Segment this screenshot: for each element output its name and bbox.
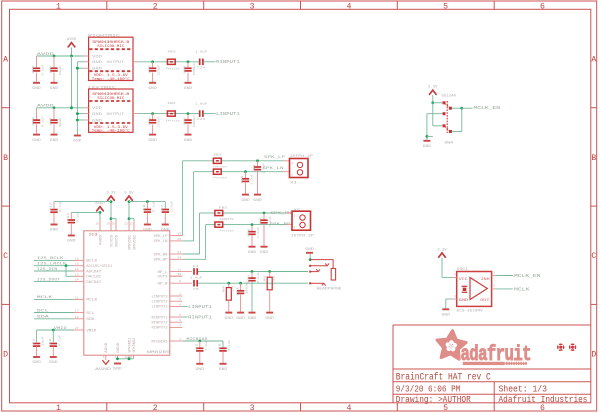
svg-text:D: D	[591, 351, 596, 360]
svg-text:19: 19	[111, 223, 115, 226]
svg-text:SPKVDD1: SPKVDD1	[127, 235, 131, 250]
svg-text:SPK_LP: SPK_LP	[154, 235, 168, 239]
svg-text:GND: GND	[253, 198, 262, 202]
svg-text:DGND: DGND	[116, 343, 120, 353]
svg-text:MCLK: MCLK	[514, 288, 530, 292]
svg-text:AGND: AGND	[104, 343, 108, 353]
svg-text:RINPUT1: RINPUT1	[216, 61, 240, 65]
svg-text:SPK_RN: SPK_RN	[154, 253, 168, 257]
svg-text:5.0V: 5.0V	[124, 191, 134, 195]
svg-text:3: 3	[250, 404, 255, 413]
svg-text:MCLK_EN: MCLK_EN	[474, 107, 501, 111]
svg-text:SPK_LN: SPK_LN	[263, 167, 285, 171]
svg-text:VCC: VCC	[459, 278, 468, 282]
svg-text:R6: R6	[264, 275, 267, 281]
svg-text:C13: C13	[241, 175, 244, 183]
svg-text:C: C	[591, 252, 596, 261]
svg-text:5: 5	[443, 3, 448, 12]
svg-text:OUT: OUT	[480, 299, 490, 303]
svg-text:ferrite: ferrite	[213, 176, 227, 180]
svg-text:FB1: FB1	[214, 153, 222, 157]
svg-text:1: 1	[56, 3, 61, 12]
svg-text:GND: GND	[236, 316, 245, 320]
svg-text:9/3/20 6:06 PM: 9/3/20 6:06 PM	[396, 384, 461, 395]
svg-text:LINPUT1: LINPUT1	[188, 306, 212, 310]
svg-text:GND: GND	[148, 86, 157, 90]
svg-text:1: 1	[291, 162, 293, 165]
svg-text:GND: GND	[219, 367, 228, 371]
svg-text:C5: C5	[193, 287, 199, 291]
svg-text:4: 4	[179, 303, 181, 306]
svg-text:GND: GND	[92, 68, 103, 72]
svg-text:GND: GND	[32, 86, 41, 90]
svg-text:2: 2	[291, 173, 293, 176]
svg-text:ADCDAT: ADCDAT	[86, 270, 101, 274]
svg-text:SWA: SWA	[444, 141, 453, 145]
svg-text:1.0uF: 1.0uF	[195, 50, 207, 54]
svg-text:MICBIAS: MICBIAS	[152, 340, 168, 344]
svg-text:29: 29	[106, 223, 110, 226]
svg-text:GND: GND	[225, 316, 234, 320]
svg-text:ferrite: ferrite	[166, 67, 180, 71]
svg-text:GND: GND	[184, 138, 193, 142]
svg-text:0.1uF: 0.1uF	[59, 201, 62, 212]
svg-text:DBVDD: DBVDD	[114, 235, 118, 247]
svg-text:OUT3: OUT3	[158, 276, 168, 280]
svg-text:C11: C11	[253, 164, 256, 172]
svg-text:24: 24	[232, 286, 235, 292]
svg-text:BrainCraft HAT rev C: BrainCraft HAT rev C	[396, 371, 491, 383]
svg-text:1000pF: 1000pF	[193, 114, 196, 127]
svg-text:C17: C17	[50, 117, 53, 125]
svg-text:AGND: AGND	[95, 367, 111, 371]
svg-text:21: 21	[124, 223, 128, 226]
svg-text:220pF: 220pF	[158, 116, 161, 127]
svg-text:GND: GND	[92, 119, 103, 123]
svg-text:Adafruit Industries: Adafruit Industries	[499, 394, 588, 405]
svg-text:7: 7	[179, 324, 181, 327]
svg-text:SILICON MIC: SILICON MIC	[97, 97, 124, 101]
svg-text:ferrite: ferrite	[213, 165, 227, 169]
svg-text:28: 28	[95, 223, 99, 226]
svg-text:GND: GND	[92, 61, 103, 65]
svg-text:SPKGND1: SPKGND1	[127, 338, 131, 353]
svg-text:SILICON MIC: SILICON MIC	[97, 45, 124, 49]
svg-text:GND: GND	[50, 138, 59, 142]
svg-text:RINPUT1: RINPUT1	[188, 316, 212, 320]
svg-text:1.0uF: 1.0uF	[170, 201, 173, 212]
svg-text:FB4: FB4	[168, 101, 176, 105]
svg-text:C23: C23	[197, 117, 205, 121]
svg-text:0.1uF: 0.1uF	[42, 116, 45, 127]
svg-text:RIGHTMIC: RIGHTMIC	[88, 35, 121, 39]
svg-text:IC3: IC3	[89, 233, 99, 237]
svg-text:AVDD: AVDD	[67, 37, 77, 41]
svg-text:ferrite: ferrite	[166, 118, 180, 122]
svg-text:10uF: 10uF	[59, 117, 62, 127]
svg-text:ECS-2520MV: ECS-2520MV	[457, 308, 483, 312]
svg-text:4: 4	[347, 3, 352, 12]
svg-text:SPK_LP: SPK_LP	[264, 156, 286, 160]
svg-text:GND: GND	[50, 228, 59, 232]
svg-text:Temp: -40-100°C: Temp: -40-100°C	[92, 129, 130, 134]
svg-text:2: 2	[153, 3, 158, 12]
svg-text:9: 9	[179, 280, 181, 283]
svg-text:1: 1	[179, 338, 181, 341]
svg-text:2: 2	[153, 404, 158, 413]
svg-text:1: 1	[56, 404, 61, 413]
svg-text:C6: C6	[143, 204, 146, 210]
svg-text:Drawing: >AUTHOR: Drawing: >AUTHOR	[396, 394, 471, 405]
svg-text:C2: C2	[196, 343, 199, 349]
svg-text:LINPUT3: LINPUT3	[152, 295, 168, 299]
svg-text:26: 26	[177, 238, 181, 241]
svg-text:6: 6	[540, 404, 545, 413]
svg-text:3: 3	[179, 298, 181, 301]
svg-text:3.3V: 3.3V	[428, 85, 438, 89]
svg-text:RINPUT1: RINPUT1	[152, 316, 168, 320]
svg-text:OUTPUT: OUTPUT	[107, 113, 125, 117]
svg-text:FB3: FB3	[168, 49, 176, 53]
svg-text:1.0uF: 1.0uF	[257, 227, 260, 238]
svg-text:3.3V: 3.3V	[106, 191, 116, 195]
svg-text:HEADPHONE: HEADPHONE	[317, 286, 342, 290]
svg-text:GND: GND	[459, 299, 469, 303]
svg-text:SPK_LN: SPK_LN	[154, 240, 168, 244]
svg-text:G51240: G51240	[442, 93, 457, 97]
svg-text:23: 23	[177, 251, 181, 254]
svg-text:1.0uF: 1.0uF	[195, 101, 207, 105]
svg-text:LEFTMIC: LEFTMIC	[88, 86, 117, 90]
svg-text:HP_R: HP_R	[158, 283, 168, 287]
svg-text:C10: C10	[50, 65, 53, 73]
svg-text:11: 11	[75, 296, 79, 299]
svg-text:VDD: VDD	[92, 55, 103, 59]
svg-text:18: 18	[75, 316, 79, 319]
svg-text:3.3V: 3.3V	[437, 248, 447, 252]
svg-text:17: 17	[75, 310, 79, 313]
svg-text:C1: C1	[32, 338, 35, 344]
svg-text:DACDAT: DACDAT	[86, 281, 101, 285]
svg-text:C7: C7	[161, 204, 164, 210]
svg-text:C4: C4	[193, 264, 199, 268]
svg-text:24: 24	[177, 256, 181, 259]
svg-text:RINPUT2: RINPUT2	[152, 322, 168, 326]
svg-text:GND: GND	[50, 86, 59, 90]
svg-text:SPK_RP: SPK_RP	[154, 259, 168, 263]
svg-text:Ferrite: Ferrite	[220, 229, 234, 233]
svg-text:WM8960: WM8960	[147, 351, 171, 355]
svg-text:SPKVDD2: SPKVDD2	[132, 235, 136, 250]
svg-text:4.7uF: 4.7uF	[58, 335, 61, 346]
svg-text:5: 5	[443, 404, 448, 413]
svg-text:0.1uF: 0.1uF	[153, 201, 156, 212]
svg-text:C19: C19	[32, 117, 35, 125]
svg-text:DACLRC: DACLRC	[86, 276, 101, 280]
svg-text:C20: C20	[248, 275, 251, 283]
svg-text:OUTPUT: OUTPUT	[107, 61, 125, 65]
svg-text:GND: GND	[32, 360, 41, 364]
svg-text:GND: GND	[196, 367, 205, 371]
svg-text:FERRITE: FERRITE	[220, 217, 234, 221]
svg-text:2.2uF: 2.2uF	[257, 272, 260, 283]
svg-text:LINPUT1: LINPUT1	[152, 306, 168, 310]
svg-text:1000pF: 1000pF	[193, 62, 196, 75]
svg-text:0.1uF: 0.1uF	[42, 64, 45, 75]
svg-text:GND: GND	[305, 247, 314, 251]
svg-text:22: 22	[129, 223, 133, 226]
svg-text:6: 6	[540, 3, 545, 12]
svg-text:MCLK: MCLK	[86, 299, 98, 303]
svg-text:GND: GND	[161, 228, 170, 232]
svg-text:36: 36	[273, 275, 276, 281]
svg-text:BCLK: BCLK	[86, 260, 98, 264]
svg-text:GND: GND	[67, 239, 76, 243]
svg-text:D: D	[3, 351, 8, 360]
svg-text:GND: GND	[143, 228, 152, 232]
svg-text:11: 11	[177, 269, 181, 272]
svg-text:GND: GND	[241, 198, 250, 202]
svg-text:R4: R4	[223, 286, 226, 292]
svg-text:5: 5	[179, 314, 181, 317]
svg-text:LINPUT2: LINPUT2	[152, 301, 168, 305]
svg-text:GND: GND	[184, 86, 193, 90]
svg-text:SCL: SCL	[86, 312, 94, 316]
svg-text:C29: C29	[148, 117, 151, 125]
svg-text:GND: GND	[265, 316, 274, 320]
svg-text:VMID: VMID	[86, 329, 96, 333]
svg-text:25: 25	[177, 233, 181, 236]
svg-text:C15: C15	[260, 217, 263, 225]
svg-text:GND: GND	[92, 113, 103, 117]
svg-text:GND: GND	[423, 144, 432, 148]
svg-text:13: 13	[75, 273, 79, 276]
svg-text:2: 2	[294, 226, 296, 229]
svg-text:12: 12	[75, 257, 79, 260]
svg-text:AVDD: AVDD	[98, 235, 102, 245]
svg-text:FB5: FB5	[219, 205, 227, 209]
svg-text:3: 3	[250, 3, 255, 12]
svg-text:0.1uF: 0.1uF	[228, 340, 231, 351]
svg-text:14: 14	[75, 279, 79, 282]
svg-text:Sheet: 1/3: Sheet: 1/3	[499, 384, 548, 395]
svg-text:MCLK_EN: MCLK_EN	[514, 275, 541, 279]
svg-text:A: A	[3, 56, 8, 65]
svg-text:JSTPH 2P: JSTPH 2P	[291, 235, 315, 239]
svg-text:X1: X1	[290, 181, 297, 185]
svg-text:C28: C28	[148, 65, 151, 73]
svg-text:0.1uF: 0.1uF	[76, 211, 79, 222]
svg-text:HP_L: HP_L	[158, 271, 168, 275]
svg-text:6: 6	[179, 319, 181, 322]
svg-text:C21: C21	[236, 287, 239, 295]
svg-text:15: 15	[75, 263, 79, 266]
svg-text:RINPUT3: RINPUT3	[152, 327, 168, 331]
svg-text:GND: GND	[32, 138, 41, 142]
svg-text:GND: GND	[148, 138, 157, 142]
svg-text:1.0uF: 1.0uF	[205, 340, 208, 351]
svg-text:16: 16	[75, 268, 79, 271]
svg-text:4: 4	[347, 404, 352, 413]
svg-text:C26: C26	[184, 117, 187, 125]
svg-text:C12: C12	[50, 202, 53, 210]
svg-text:GND: GND	[113, 367, 122, 371]
svg-text:C9: C9	[49, 338, 52, 344]
svg-text:DCVDD: DCVDD	[109, 235, 113, 247]
svg-text:10uF: 10uF	[42, 336, 45, 346]
svg-text:10uF: 10uF	[59, 65, 62, 75]
svg-text:GND: GND	[248, 250, 257, 254]
svg-text:C18: C18	[248, 228, 251, 236]
svg-text:B: B	[3, 154, 8, 163]
svg-text:SDA: SDA	[86, 318, 95, 322]
svg-text:ADCLRC/GPIO1: ADCLRC/GPIO1	[86, 264, 112, 269]
svg-text:SPKGND2: SPKGND2	[132, 338, 136, 353]
svg-text:GND: GND	[49, 360, 58, 364]
svg-text:C8: C8	[219, 343, 222, 349]
svg-text:GND: GND	[260, 250, 269, 254]
svg-text:GND: GND	[73, 139, 82, 143]
svg-text:1.0uF: 1.0uF	[251, 174, 254, 185]
svg-text:C14: C14	[67, 213, 70, 221]
svg-text:1.0uF: 1.0uF	[190, 275, 202, 279]
svg-text:C: C	[3, 252, 8, 261]
svg-text:C25: C25	[184, 65, 187, 73]
svg-text:INH: INH	[481, 278, 490, 282]
svg-text:2: 2	[179, 293, 181, 296]
svg-text:C16: C16	[32, 65, 35, 73]
svg-text:LINPUT1: LINPUT1	[216, 113, 240, 117]
svg-text:27: 27	[75, 327, 79, 330]
svg-text:1: 1	[294, 215, 296, 218]
svg-text:B: B	[591, 154, 596, 163]
svg-text:GND: GND	[248, 316, 257, 320]
svg-text:GND: GND	[442, 313, 451, 317]
svg-text:A: A	[591, 56, 596, 65]
svg-text:VDD: VDD	[92, 107, 103, 111]
svg-text:220pF: 220pF	[158, 64, 161, 75]
svg-text:Temp: -40-100°C: Temp: -40-100°C	[92, 77, 130, 82]
svg-text:C24: C24	[197, 65, 205, 69]
